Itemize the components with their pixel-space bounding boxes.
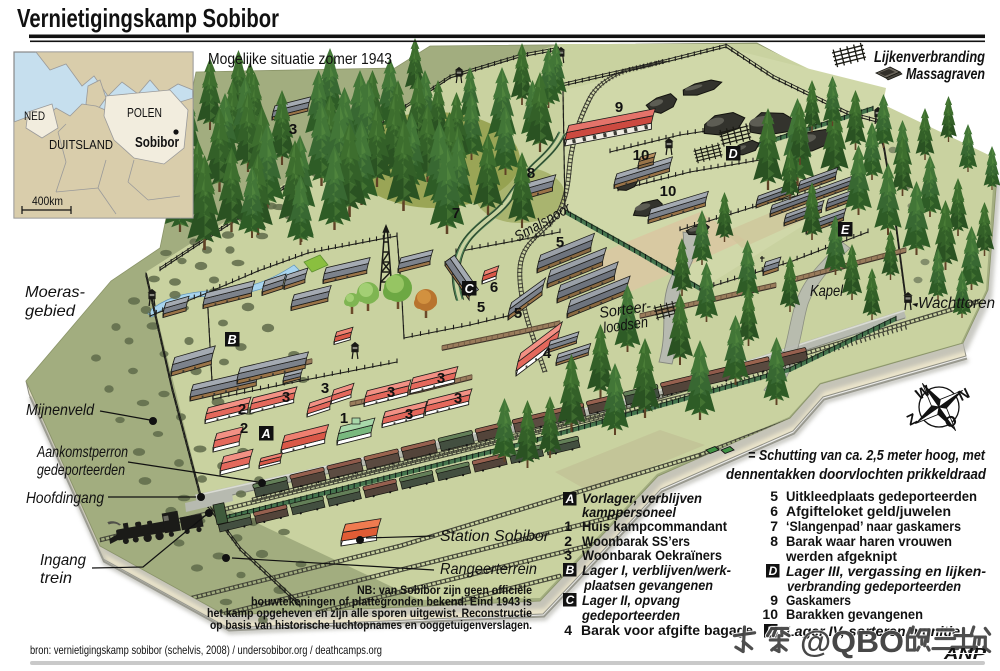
svg-text:POLEN: POLEN: [127, 106, 162, 120]
svg-text:plaatsen gevangenen: plaatsen gevangenen: [583, 577, 713, 593]
svg-text:Kapel: Kapel: [810, 283, 843, 300]
svg-text:ANP: ANP: [943, 646, 987, 663]
svg-text:@QBO: @QBO: [800, 624, 904, 659]
svg-text:4: 4: [564, 622, 572, 638]
svg-text:Huis kampcommandant: Huis kampcommandant: [582, 518, 727, 534]
svg-text:Lager II, opvang: Lager II, opvang: [582, 592, 680, 608]
svg-text:C: C: [465, 282, 475, 296]
svg-text:Uitkleedplaats gedeporteerden: Uitkleedplaats gedeporteerden: [786, 488, 977, 504]
svg-text:3: 3: [289, 121, 297, 138]
svg-text:Mijnenveld: Mijnenveld: [26, 402, 95, 419]
svg-text:trein: trein: [40, 570, 72, 587]
svg-text:A: A: [261, 427, 271, 441]
svg-text:3: 3: [437, 370, 445, 387]
svg-text:Barak waar haren vrouwen: Barak waar haren vrouwen: [786, 533, 952, 549]
svg-text:‘Slangenpad’ naar gaskamers: ‘Slangenpad’ naar gaskamers: [786, 518, 961, 534]
svg-text:DUITSLAND: DUITSLAND: [49, 138, 113, 152]
svg-text:4: 4: [543, 345, 552, 362]
svg-text:3: 3: [387, 384, 395, 401]
svg-text:Rangeerterrein: Rangeerterrein: [440, 561, 537, 578]
svg-text:3: 3: [564, 547, 572, 563]
svg-text:Vernietigingskamp Sobibor: Vernietigingskamp Sobibor: [17, 3, 279, 33]
svg-text:Woonbarak Oekraïners: Woonbarak Oekraïners: [582, 547, 722, 563]
svg-text:Aankomstperron: Aankomstperron: [36, 444, 128, 461]
svg-text:B: B: [228, 333, 237, 347]
svg-text:9: 9: [615, 99, 623, 116]
svg-text:Hoofdingang: Hoofdingang: [26, 490, 104, 507]
svg-text:E: E: [841, 223, 850, 237]
svg-text:A: A: [565, 492, 575, 506]
svg-text:Barak voor afgifte bagage: Barak voor afgifte bagage: [581, 622, 753, 638]
svg-text:2: 2: [240, 420, 248, 437]
svg-text:werden afgeknipt: werden afgeknipt: [785, 548, 897, 564]
svg-text:Barakken gevangenen: Barakken gevangenen: [786, 606, 923, 622]
svg-text:gedeporteerden: gedeporteerden: [581, 607, 680, 623]
svg-text:= Schutting van ca. 2,5 meter: = Schutting van ca. 2,5 meter hoog, met: [748, 447, 986, 464]
svg-text:Ingang: Ingang: [40, 552, 86, 569]
svg-text:5: 5: [556, 234, 564, 251]
svg-text:NED: NED: [24, 111, 45, 123]
svg-text:op basis van historische lucht: op basis van historische luchtopnames en…: [210, 618, 532, 632]
svg-text:5: 5: [770, 488, 778, 504]
svg-text:bron: vernietigingskamp sobibo: bron: vernietigingskamp sobibor (schelvi…: [30, 643, 382, 657]
svg-text:3: 3: [282, 389, 290, 406]
svg-text:Mogelijke situatie zomer 1943: Mogelijke situatie zomer 1943: [208, 51, 392, 68]
svg-text:2: 2: [238, 401, 246, 418]
svg-text:D: D: [729, 147, 738, 161]
svg-text:Massagraven: Massagraven: [906, 66, 985, 83]
svg-text:400km: 400km: [32, 194, 63, 208]
svg-text:Station Sobibor: Station Sobibor: [440, 528, 550, 545]
svg-text:3: 3: [405, 406, 413, 423]
svg-text:5: 5: [477, 299, 485, 316]
svg-text:Lager I, verblijven/werk-: Lager I, verblijven/werk-: [582, 562, 731, 578]
svg-text:Lager III, vergassing en lijke: Lager III, vergassing en lijken-: [786, 563, 986, 579]
svg-text:6: 6: [770, 503, 778, 519]
svg-text:5: 5: [514, 305, 522, 322]
svg-text:B: B: [566, 563, 575, 577]
svg-text:10: 10: [633, 147, 650, 164]
svg-text:Moeras-: Moeras-: [25, 284, 85, 301]
svg-text:6: 6: [490, 279, 498, 296]
svg-text:1: 1: [340, 410, 348, 427]
svg-text:10: 10: [762, 606, 778, 622]
svg-text:10: 10: [660, 183, 677, 200]
svg-text:3: 3: [321, 380, 329, 397]
svg-text:Lijkenverbranding: Lijkenverbranding: [874, 49, 985, 66]
svg-text:gedeporteerden: gedeporteerden: [37, 462, 125, 479]
svg-text:1: 1: [564, 518, 572, 534]
svg-text:8: 8: [527, 165, 535, 182]
svg-text:Wachttoren: Wachttoren: [918, 295, 995, 312]
svg-text:7: 7: [770, 518, 778, 534]
svg-text:3: 3: [454, 390, 462, 407]
svg-text:Afgifteloket geld/juwelen: Afgifteloket geld/juwelen: [786, 503, 951, 519]
svg-text:D: D: [769, 564, 778, 578]
svg-text:8: 8: [770, 533, 778, 549]
svg-text:7: 7: [452, 205, 460, 222]
svg-text:C: C: [566, 593, 575, 607]
svg-text:gebied: gebied: [25, 303, 76, 320]
svg-text:dennentakken doorvlochten prik: dennentakken doorvlochten prikkeldraad: [726, 466, 987, 483]
svg-text:Sobibor: Sobibor: [135, 135, 179, 151]
